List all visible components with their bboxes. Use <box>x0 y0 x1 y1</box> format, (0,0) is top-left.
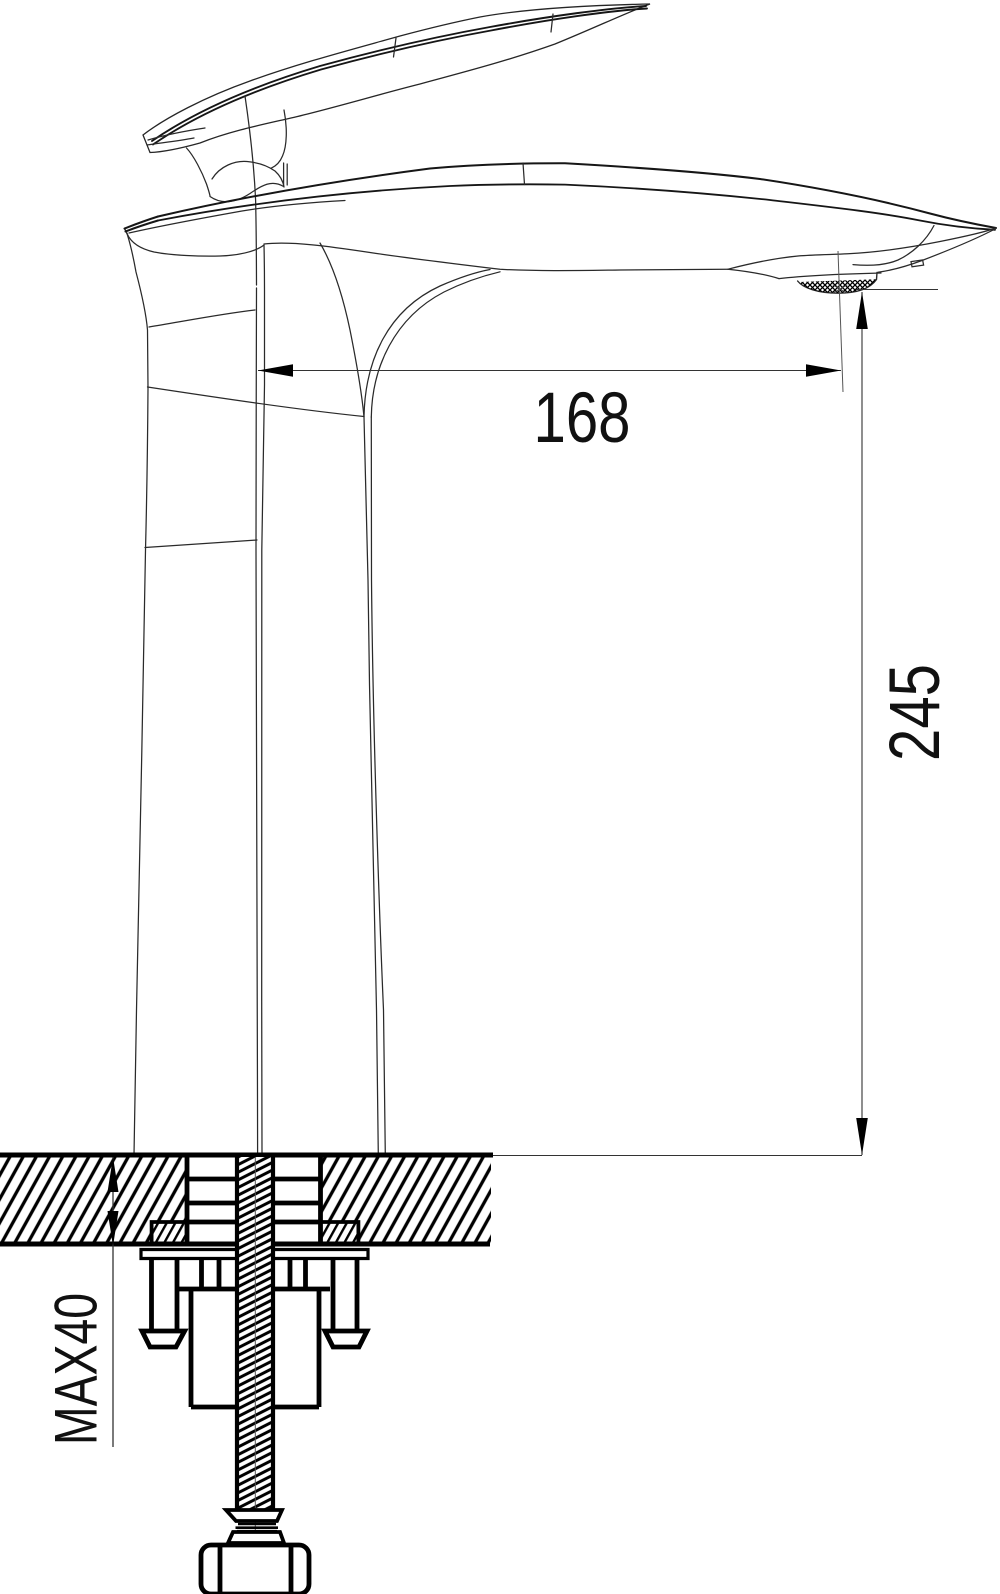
svg-text:168: 168 <box>534 379 631 458</box>
svg-text:MAX40: MAX40 <box>43 1293 110 1445</box>
svg-text:245: 245 <box>876 664 955 761</box>
